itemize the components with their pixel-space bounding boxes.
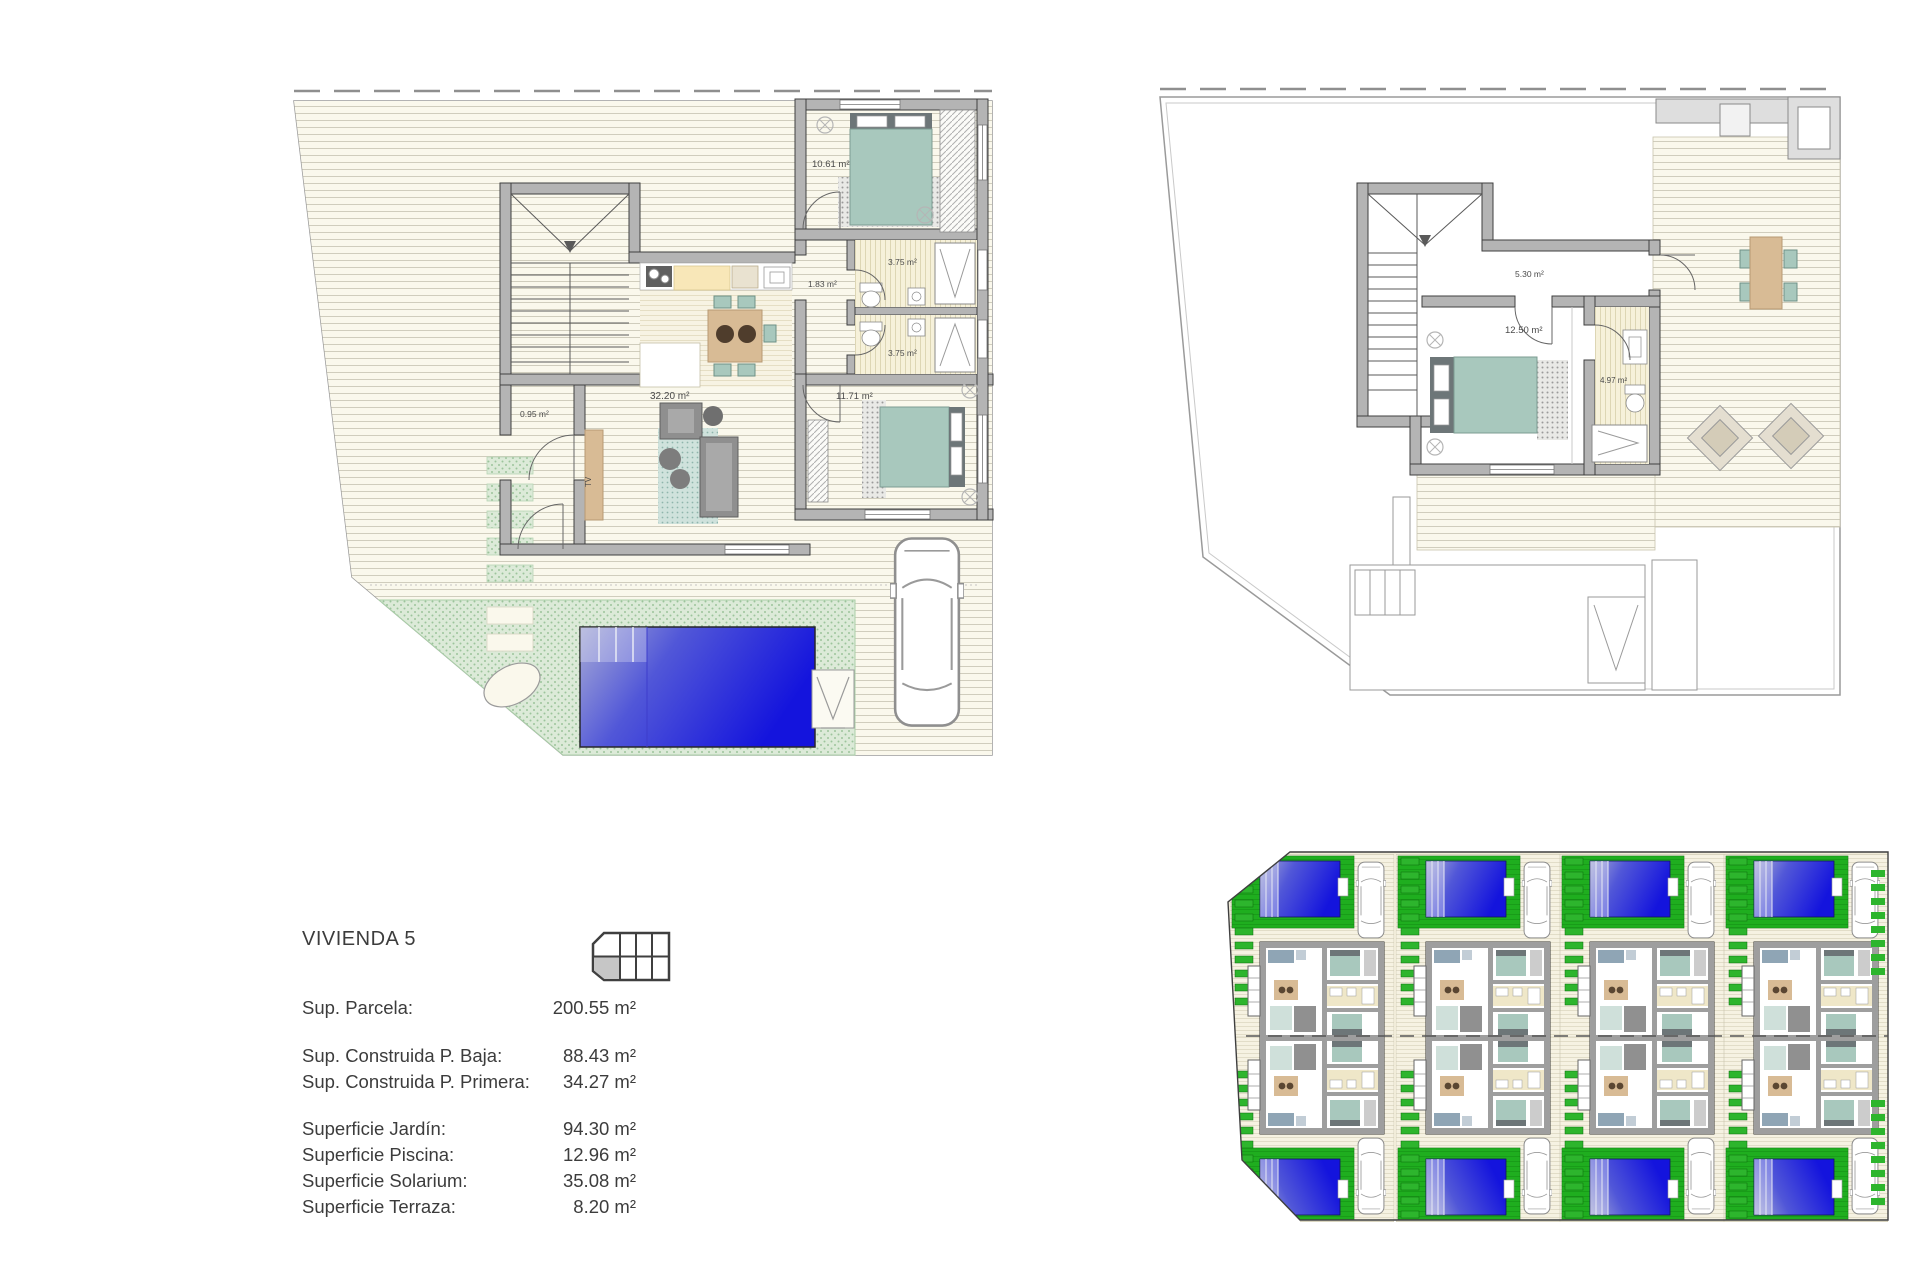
site-plan bbox=[1220, 850, 1890, 1230]
area-row: Sup. Construida P. Baja: 88.43 m² bbox=[302, 1043, 636, 1069]
area-value: 12.96 m² bbox=[563, 1142, 636, 1168]
sink bbox=[908, 319, 925, 336]
first-floor-plan: 5.30 m² 12.50 m² 4.97 m² bbox=[1100, 85, 1845, 700]
side-table bbox=[703, 406, 723, 426]
pillow bbox=[951, 413, 962, 441]
room-area-label: 0.95 m² bbox=[520, 409, 549, 419]
area-label: Sup. Construida P. Baja: bbox=[302, 1043, 502, 1069]
area-value: 94.30 m² bbox=[563, 1116, 636, 1142]
site-unit bbox=[1230, 854, 1394, 1041]
area-value: 88.43 m² bbox=[563, 1043, 636, 1069]
area-value: 8.20 m² bbox=[573, 1194, 636, 1220]
room-area-label: 32.20 m² bbox=[650, 391, 690, 402]
double-bed bbox=[850, 129, 932, 225]
ground-floor-ghost-outline bbox=[1350, 560, 1697, 690]
site-unit bbox=[1724, 1035, 1888, 1222]
kitchen-sink bbox=[764, 267, 790, 288]
site-units-row-2 bbox=[1230, 1035, 1888, 1222]
wardrobe bbox=[940, 110, 975, 232]
area-label: Superficie Piscina: bbox=[302, 1142, 454, 1168]
tv-label: TV bbox=[584, 476, 593, 487]
pillow bbox=[857, 116, 887, 127]
double-bed bbox=[880, 407, 949, 487]
area-group-built: Sup. Construida P. Baja: 88.43 m² Sup. C… bbox=[302, 1043, 636, 1095]
area-row: Superficie Jardín: 94.30 m² bbox=[302, 1116, 636, 1142]
area-label: Sup. Construida P. Primera: bbox=[302, 1069, 530, 1095]
terrace-deck bbox=[1417, 475, 1655, 550]
area-label: Superficie Solarium: bbox=[302, 1168, 468, 1194]
shower bbox=[1592, 425, 1647, 462]
area-label: Sup. Parcela: bbox=[302, 995, 413, 1021]
ground-floor-plan: TV bbox=[280, 85, 995, 760]
room-area-label: 3.75 m² bbox=[888, 257, 917, 267]
pouf bbox=[670, 469, 690, 489]
room-area-label: 4.97 m² bbox=[1600, 376, 1627, 385]
area-row: Superficie Terraza: 8.20 m² bbox=[302, 1194, 636, 1220]
outdoor-table bbox=[1750, 237, 1782, 309]
site-unit bbox=[1560, 854, 1724, 1041]
site-unit bbox=[1396, 854, 1560, 1041]
bathroom-2 bbox=[855, 315, 977, 374]
dwelling-title: VIVIENDA 5 bbox=[302, 928, 636, 951]
bedroom-rug bbox=[1537, 360, 1568, 440]
kitchen-counter bbox=[674, 266, 730, 290]
site-unit bbox=[1560, 1035, 1724, 1222]
site-unit bbox=[1396, 1035, 1560, 1222]
solarium-deck bbox=[1653, 137, 1840, 527]
area-label: Superficie Terraza: bbox=[302, 1194, 456, 1220]
pouf bbox=[659, 448, 681, 470]
room-area-label: 11.71 m² bbox=[836, 391, 873, 402]
area-row: Sup. Parcela: 200.55 m² bbox=[302, 995, 636, 1021]
area-summary-panel: VIVIENDA 5 Sup. Parcela: 200.55 m² Sup. … bbox=[302, 928, 636, 1220]
room-area-label: 10.61 m² bbox=[812, 159, 850, 170]
room-area-label: 5.30 m² bbox=[1515, 269, 1544, 279]
room-area-label: 3.75 m² bbox=[888, 348, 917, 358]
site-unit bbox=[1724, 854, 1888, 1041]
wardrobe bbox=[808, 420, 828, 502]
area-group-exterior: Superficie Jardín: 94.30 m² Superficie P… bbox=[302, 1116, 636, 1220]
area-value: 34.27 m² bbox=[563, 1069, 636, 1095]
double-bed bbox=[1454, 357, 1537, 433]
sink bbox=[1623, 330, 1647, 364]
pillow bbox=[1434, 399, 1449, 425]
room-area-label: 12.50 m² bbox=[1505, 325, 1543, 336]
tv-cabinet bbox=[585, 430, 603, 520]
toilet bbox=[1625, 385, 1645, 394]
highlighted-unit-cell bbox=[593, 957, 620, 981]
area-group-parcel: Sup. Parcela: 200.55 m² bbox=[302, 995, 636, 1021]
pool bbox=[580, 627, 815, 747]
bathroom bbox=[1592, 307, 1649, 464]
parked-car bbox=[890, 538, 964, 725]
pillow bbox=[951, 447, 962, 475]
area-row: Superficie Piscina: 12.96 m² bbox=[302, 1142, 636, 1168]
pillow bbox=[1434, 365, 1449, 391]
fridge bbox=[732, 266, 758, 288]
area-value: 35.08 m² bbox=[563, 1168, 636, 1194]
kitchen-island bbox=[640, 343, 700, 387]
sink bbox=[908, 288, 925, 305]
area-label: Superficie Jardín: bbox=[302, 1116, 446, 1142]
pillow bbox=[895, 116, 925, 127]
outdoor-shower bbox=[812, 670, 854, 728]
area-value: 200.55 m² bbox=[553, 995, 636, 1021]
site-units-row-1 bbox=[1230, 854, 1888, 1041]
area-row: Sup. Construida P. Primera: 34.27 m² bbox=[302, 1069, 636, 1095]
room-area-label: 1.83 m² bbox=[808, 279, 837, 289]
bathroom-1 bbox=[855, 240, 977, 307]
area-row: Superficie Solarium: 35.08 m² bbox=[302, 1168, 636, 1194]
unit-location-key-icon bbox=[590, 931, 672, 983]
